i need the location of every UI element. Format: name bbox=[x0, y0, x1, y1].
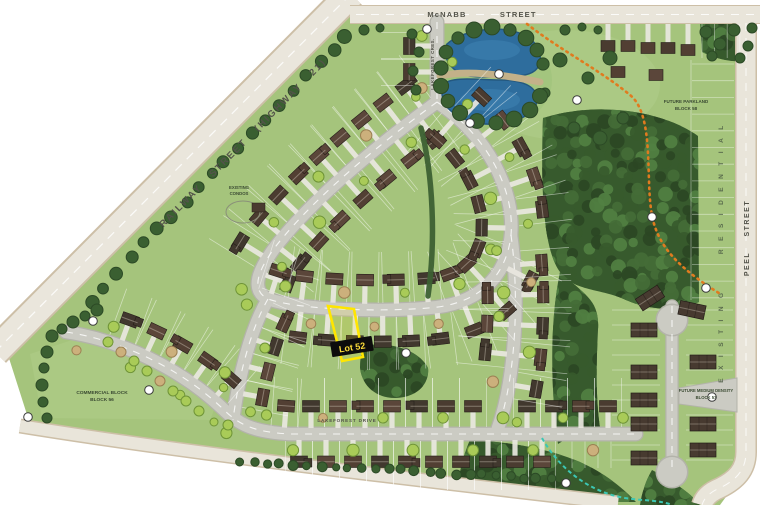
future-medium-density-label-1: FUTURE MEDIUM DENSITY bbox=[679, 388, 734, 393]
tree bbox=[333, 464, 340, 471]
tree bbox=[110, 267, 123, 280]
tree bbox=[454, 278, 465, 289]
tree bbox=[452, 32, 464, 44]
tree bbox=[587, 445, 598, 456]
tree bbox=[313, 216, 325, 228]
tree bbox=[126, 251, 138, 263]
tree bbox=[370, 322, 379, 331]
tree bbox=[246, 407, 256, 417]
tree bbox=[241, 299, 252, 310]
tree bbox=[378, 413, 388, 423]
tree bbox=[337, 30, 351, 44]
tree bbox=[38, 397, 48, 407]
tree bbox=[439, 45, 453, 59]
tree bbox=[434, 319, 443, 328]
tree bbox=[288, 461, 298, 471]
map-marker-icon bbox=[702, 284, 711, 293]
tree bbox=[520, 474, 528, 482]
tree bbox=[497, 286, 510, 299]
tree bbox=[448, 57, 457, 66]
tree bbox=[361, 130, 372, 141]
tree bbox=[306, 319, 316, 329]
mcnabb-street-road bbox=[350, 5, 760, 24]
tree bbox=[434, 61, 448, 75]
tree bbox=[251, 458, 259, 466]
tree bbox=[436, 469, 446, 479]
tree bbox=[558, 413, 568, 423]
tree bbox=[359, 176, 368, 185]
tree bbox=[728, 24, 740, 36]
tree bbox=[466, 22, 482, 38]
tree bbox=[57, 324, 67, 334]
tree bbox=[504, 24, 516, 36]
tree bbox=[426, 468, 435, 477]
page-margin-top bbox=[0, 0, 760, 5]
tree bbox=[168, 386, 178, 396]
existing-condos-label-1: EXISTING bbox=[229, 185, 250, 190]
tree bbox=[487, 376, 498, 387]
site-plan-map: RAILWAY STREET (HIGHWAY 21) McNABB STREE… bbox=[0, 0, 760, 505]
tree bbox=[568, 122, 580, 134]
tree bbox=[747, 23, 757, 33]
tree bbox=[618, 412, 629, 423]
page-margin-right bbox=[757, 0, 760, 505]
tree bbox=[735, 53, 745, 63]
map-marker-icon bbox=[423, 25, 432, 34]
tree bbox=[103, 337, 113, 347]
tree bbox=[181, 396, 191, 406]
existing-house bbox=[649, 70, 663, 81]
tree bbox=[505, 153, 514, 162]
tree bbox=[236, 284, 248, 296]
tree bbox=[72, 346, 81, 355]
tree bbox=[400, 288, 409, 297]
tree bbox=[530, 43, 544, 57]
tree bbox=[522, 102, 538, 118]
tree bbox=[548, 474, 556, 482]
tree bbox=[438, 413, 449, 424]
map-marker-icon bbox=[648, 213, 657, 222]
tree bbox=[116, 347, 126, 357]
tree bbox=[328, 44, 341, 57]
tree bbox=[385, 464, 394, 473]
tree bbox=[155, 376, 165, 386]
tree bbox=[42, 413, 52, 423]
tree bbox=[359, 25, 369, 35]
tree bbox=[406, 137, 416, 147]
tree bbox=[433, 78, 448, 93]
tree bbox=[347, 444, 359, 456]
tree bbox=[357, 464, 366, 473]
tree bbox=[468, 445, 479, 456]
future-parkland-label-2: BLOCK 58 bbox=[675, 106, 698, 111]
tree bbox=[518, 30, 534, 46]
tree bbox=[274, 459, 283, 468]
map-marker-icon bbox=[89, 317, 98, 326]
existing-condos-label-2: CONDOS bbox=[230, 191, 249, 196]
tree bbox=[142, 366, 152, 376]
tree bbox=[466, 470, 476, 480]
tree bbox=[506, 111, 522, 127]
tree bbox=[512, 418, 521, 427]
tree bbox=[407, 444, 419, 456]
townhouse-block bbox=[690, 443, 716, 457]
tree bbox=[46, 330, 58, 342]
tree bbox=[582, 72, 594, 84]
tree bbox=[527, 278, 536, 287]
tree bbox=[277, 262, 286, 271]
tree bbox=[452, 105, 467, 120]
tree bbox=[593, 131, 607, 145]
tree bbox=[560, 25, 570, 35]
townhouse-block bbox=[631, 323, 657, 337]
tree bbox=[36, 379, 48, 391]
tree bbox=[260, 343, 270, 353]
tree bbox=[303, 462, 311, 470]
tree bbox=[376, 24, 384, 32]
tree bbox=[497, 412, 509, 424]
tree bbox=[261, 410, 271, 420]
mcnabb-street-label: McNABB STREET bbox=[427, 10, 536, 19]
tree bbox=[219, 367, 230, 378]
tree bbox=[409, 466, 419, 476]
tree bbox=[537, 58, 549, 70]
tree bbox=[339, 287, 351, 299]
tree bbox=[372, 465, 380, 473]
townhouse-block bbox=[631, 417, 657, 431]
tree bbox=[129, 356, 139, 366]
map-marker-icon bbox=[466, 119, 475, 128]
future-parkland-label-1: FUTURE PARKLAND bbox=[664, 99, 709, 104]
tree bbox=[494, 311, 504, 321]
tree bbox=[407, 29, 417, 39]
tree bbox=[700, 26, 712, 38]
tree bbox=[98, 283, 109, 294]
tree bbox=[452, 470, 462, 480]
tree bbox=[603, 51, 617, 65]
tree bbox=[39, 363, 49, 373]
tree bbox=[317, 462, 327, 472]
tree bbox=[194, 406, 204, 416]
tree bbox=[594, 26, 602, 34]
tree bbox=[533, 89, 548, 104]
townhouse-block bbox=[690, 355, 716, 369]
map-marker-icon bbox=[573, 96, 582, 105]
townhouse-block bbox=[631, 393, 657, 407]
tree bbox=[223, 420, 233, 430]
tree bbox=[219, 383, 227, 391]
tree bbox=[343, 464, 350, 471]
future-medium-density-label-2: BLOCK 57 bbox=[696, 395, 717, 400]
tree bbox=[489, 116, 503, 130]
tree bbox=[528, 445, 539, 456]
townhouse-block bbox=[690, 417, 716, 431]
townhouse-block bbox=[631, 365, 657, 379]
tree bbox=[743, 41, 753, 51]
tree bbox=[236, 458, 244, 466]
tree bbox=[460, 145, 469, 154]
map-marker-icon bbox=[562, 479, 571, 488]
tree bbox=[507, 472, 516, 481]
tree bbox=[477, 469, 486, 478]
commercial-block-label-2: BLOCK 56 bbox=[90, 397, 114, 403]
tree bbox=[414, 47, 424, 57]
tree bbox=[166, 346, 177, 357]
tree bbox=[408, 66, 418, 76]
tree bbox=[396, 464, 405, 473]
tree bbox=[138, 237, 149, 248]
tree bbox=[578, 23, 586, 31]
tree bbox=[524, 219, 533, 228]
lakeforest-drive-label: LAKEFOREST DRIVE bbox=[317, 418, 376, 423]
commercial-block-label-1: COMMERCIAL BLOCK bbox=[76, 390, 128, 396]
tree bbox=[108, 321, 119, 332]
tree bbox=[269, 218, 279, 228]
tree bbox=[313, 171, 324, 182]
existing-residential-label: EXISTING RESIDENTIAL bbox=[718, 117, 725, 382]
map-marker-icon bbox=[402, 349, 411, 358]
tree bbox=[411, 85, 421, 95]
tree bbox=[707, 51, 717, 61]
townhouse-block bbox=[631, 451, 657, 465]
tree bbox=[553, 53, 567, 67]
map-marker-icon bbox=[24, 413, 33, 422]
map-marker-icon bbox=[145, 386, 154, 395]
tree bbox=[714, 38, 726, 50]
tree bbox=[492, 471, 500, 479]
tree bbox=[617, 112, 629, 124]
tree bbox=[67, 316, 79, 328]
map-marker-icon bbox=[495, 70, 504, 79]
existing-house bbox=[611, 67, 625, 78]
tree bbox=[210, 418, 218, 426]
tree bbox=[441, 94, 455, 108]
peel-street-label: PEEL STREET bbox=[744, 200, 751, 276]
tree bbox=[287, 445, 298, 456]
tree bbox=[91, 304, 103, 316]
tree bbox=[531, 473, 541, 483]
tree bbox=[492, 246, 502, 256]
tree bbox=[484, 192, 496, 204]
lakeforest-cres-label: LAKEFOREST CRES. bbox=[430, 38, 435, 89]
tree bbox=[41, 346, 53, 358]
tree bbox=[280, 281, 291, 292]
tree bbox=[523, 346, 535, 358]
tree bbox=[484, 19, 500, 35]
tree bbox=[264, 460, 272, 468]
